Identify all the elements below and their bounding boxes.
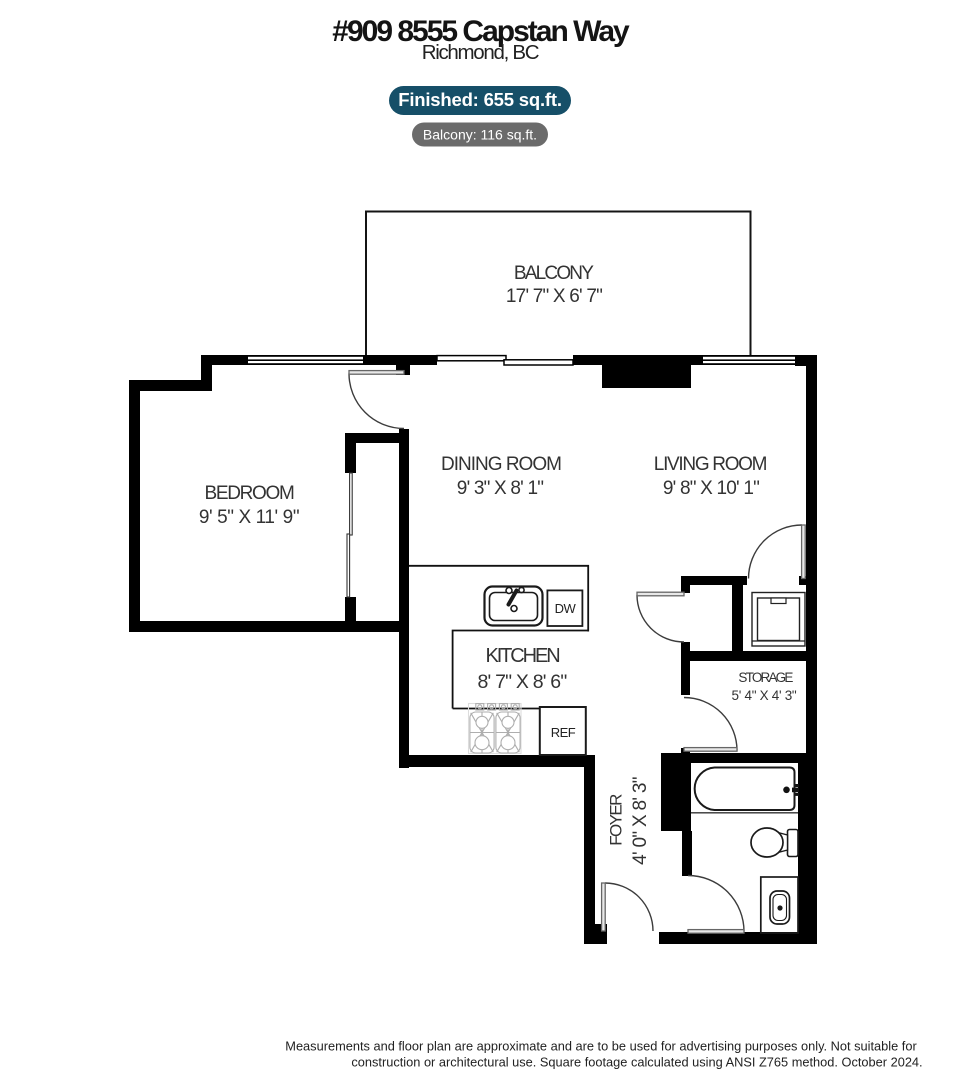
svg-text:DINING ROOM: DINING ROOM [441, 454, 561, 475]
svg-text:4' 0" X 8' 3": 4' 0" X 8' 3" [630, 777, 651, 865]
svg-text:Measurements and floor plan ar: Measurements and floor plan are approxim… [285, 1039, 917, 1054]
svg-text:LIVING ROOM: LIVING ROOM [654, 454, 767, 475]
svg-text:DW: DW [555, 601, 577, 616]
svg-text:FOYER: FOYER [607, 794, 626, 846]
svg-text:9' 5" X 11' 9": 9' 5" X 11' 9" [199, 507, 299, 528]
svg-text:17' 7" X 6' 7": 17' 7" X 6' 7" [506, 286, 602, 307]
svg-text:Balcony: 116 sq.ft.: Balcony: 116 sq.ft. [423, 127, 537, 143]
svg-text:9' 8" X 10' 1": 9' 8" X 10' 1" [663, 478, 759, 499]
svg-text:KITCHEN: KITCHEN [485, 645, 559, 667]
svg-text:REF: REF [551, 725, 576, 740]
svg-text:Finished: 655 sq.ft.: Finished: 655 sq.ft. [398, 89, 562, 110]
svg-text:9' 3" X 8' 1": 9' 3" X 8' 1" [457, 478, 543, 499]
svg-text:BEDROOM: BEDROOM [204, 483, 294, 504]
svg-text:Richmond, BC: Richmond, BC [422, 41, 540, 64]
svg-text:construction or architectural: construction or architectural use. Squar… [351, 1055, 922, 1070]
svg-text:BALCONY: BALCONY [514, 263, 594, 284]
svg-text:STORAGE: STORAGE [738, 670, 793, 685]
svg-text:5' 4" X 4' 3": 5' 4" X 4' 3" [732, 688, 797, 703]
svg-text:8' 7" X 8' 6": 8' 7" X 8' 6" [478, 671, 568, 693]
